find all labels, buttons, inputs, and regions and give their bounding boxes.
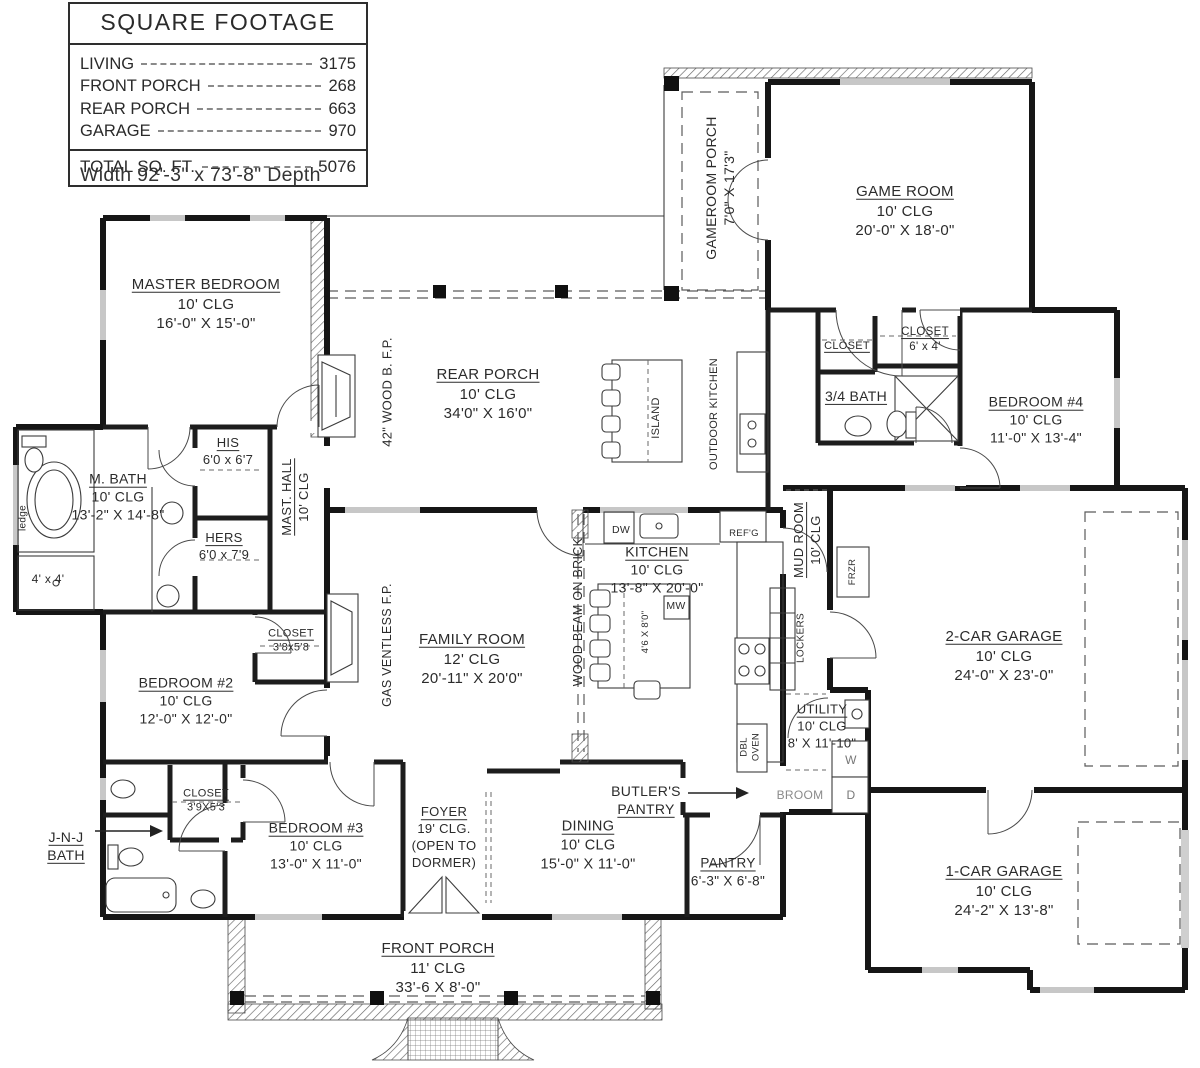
range [735,638,769,684]
row-label: LIVING [80,53,134,75]
porch-column [664,76,679,91]
row-value: 3175 [319,53,356,75]
row-value: 663 [328,98,356,120]
master-shower [18,556,94,610]
stool [590,640,610,657]
stool [634,681,660,699]
kitchen-sink [640,514,678,538]
jnj-sink [191,890,215,908]
table-row: REAR PORCH 663 [80,98,356,120]
jnj-tub [106,878,176,912]
leader-dashes [197,108,321,110]
stool [602,416,620,432]
row-label: FRONT PORCH [80,75,201,97]
stool [602,390,620,406]
porch-island [612,360,682,462]
total-value: 5076 [318,156,356,179]
porch-column [230,991,244,1005]
grill [740,414,765,454]
row-label: GARAGE [80,120,151,142]
dryer-box [832,777,868,813]
vanity-sink [161,502,183,524]
leader-dashes [158,130,322,132]
porch-column [646,991,660,1005]
table-row: LIVING 3175 [80,53,356,75]
square-footage-table: SQUARE FOOTAGE LIVING 3175 FRONT PORCH 2… [68,2,368,187]
porch-column [370,991,384,1005]
jnj-toilet [119,848,143,866]
stool [590,615,610,632]
stool [590,664,610,681]
floor-plan-page: SQUARE FOOTAGE LIVING 3175 FRONT PORCH 2… [0,0,1200,1068]
brick-post [572,734,588,762]
roof-edge-hatch [664,68,1032,78]
table-title: SQUARE FOOTAGE [70,4,366,45]
stool [602,442,620,458]
porch-column [433,285,446,298]
vanity-sink [157,585,179,607]
master-toilet [25,448,43,472]
double-oven [737,724,767,772]
table-row: FRONT PORCH 268 [80,75,356,97]
front-porch-beam [245,996,645,1002]
porch-column [504,991,518,1005]
leader-dashes [141,63,312,65]
row-value: 268 [328,75,356,97]
car-space-2car [1085,512,1178,766]
annotation-arrows [95,787,749,837]
leader-dashes [208,85,322,87]
sink-34 [845,416,871,436]
overall-dimensions-note: Width 92'-3" x 73'-8" Depth [80,164,321,187]
utility-sink [845,700,869,728]
table-body: LIVING 3175 FRONT PORCH 268 REAR PORCH 6… [70,45,366,151]
toilet-34 [887,411,907,437]
rear-porch-beam [327,291,768,298]
step-flare-left [372,1018,408,1060]
porch-column [664,286,679,301]
car-space-1car [1078,822,1180,944]
porch-column [555,285,568,298]
front-double-door [409,877,479,913]
freezer [837,547,869,597]
row-label: REAR PORCH [80,98,190,120]
row-value: 970 [328,120,356,142]
porch-brick-front [228,1004,662,1020]
door-openings [148,158,1034,923]
front-steps [408,1018,498,1060]
refrigerator [720,511,766,542]
porch-structures [228,68,1032,1060]
washer-box [832,741,868,777]
microwave [664,596,689,619]
stool [602,364,620,380]
stool [590,590,610,607]
dishwasher [604,512,634,543]
toilet-tank [22,436,46,447]
brick-post [572,510,588,538]
walls [16,82,1185,990]
jnj-sink [111,780,135,798]
table-row: GARAGE 970 [80,120,356,142]
step-flare-right [498,1018,534,1060]
jnj-toilet-tank [108,845,118,869]
gameroom-porch-outline [682,92,758,290]
